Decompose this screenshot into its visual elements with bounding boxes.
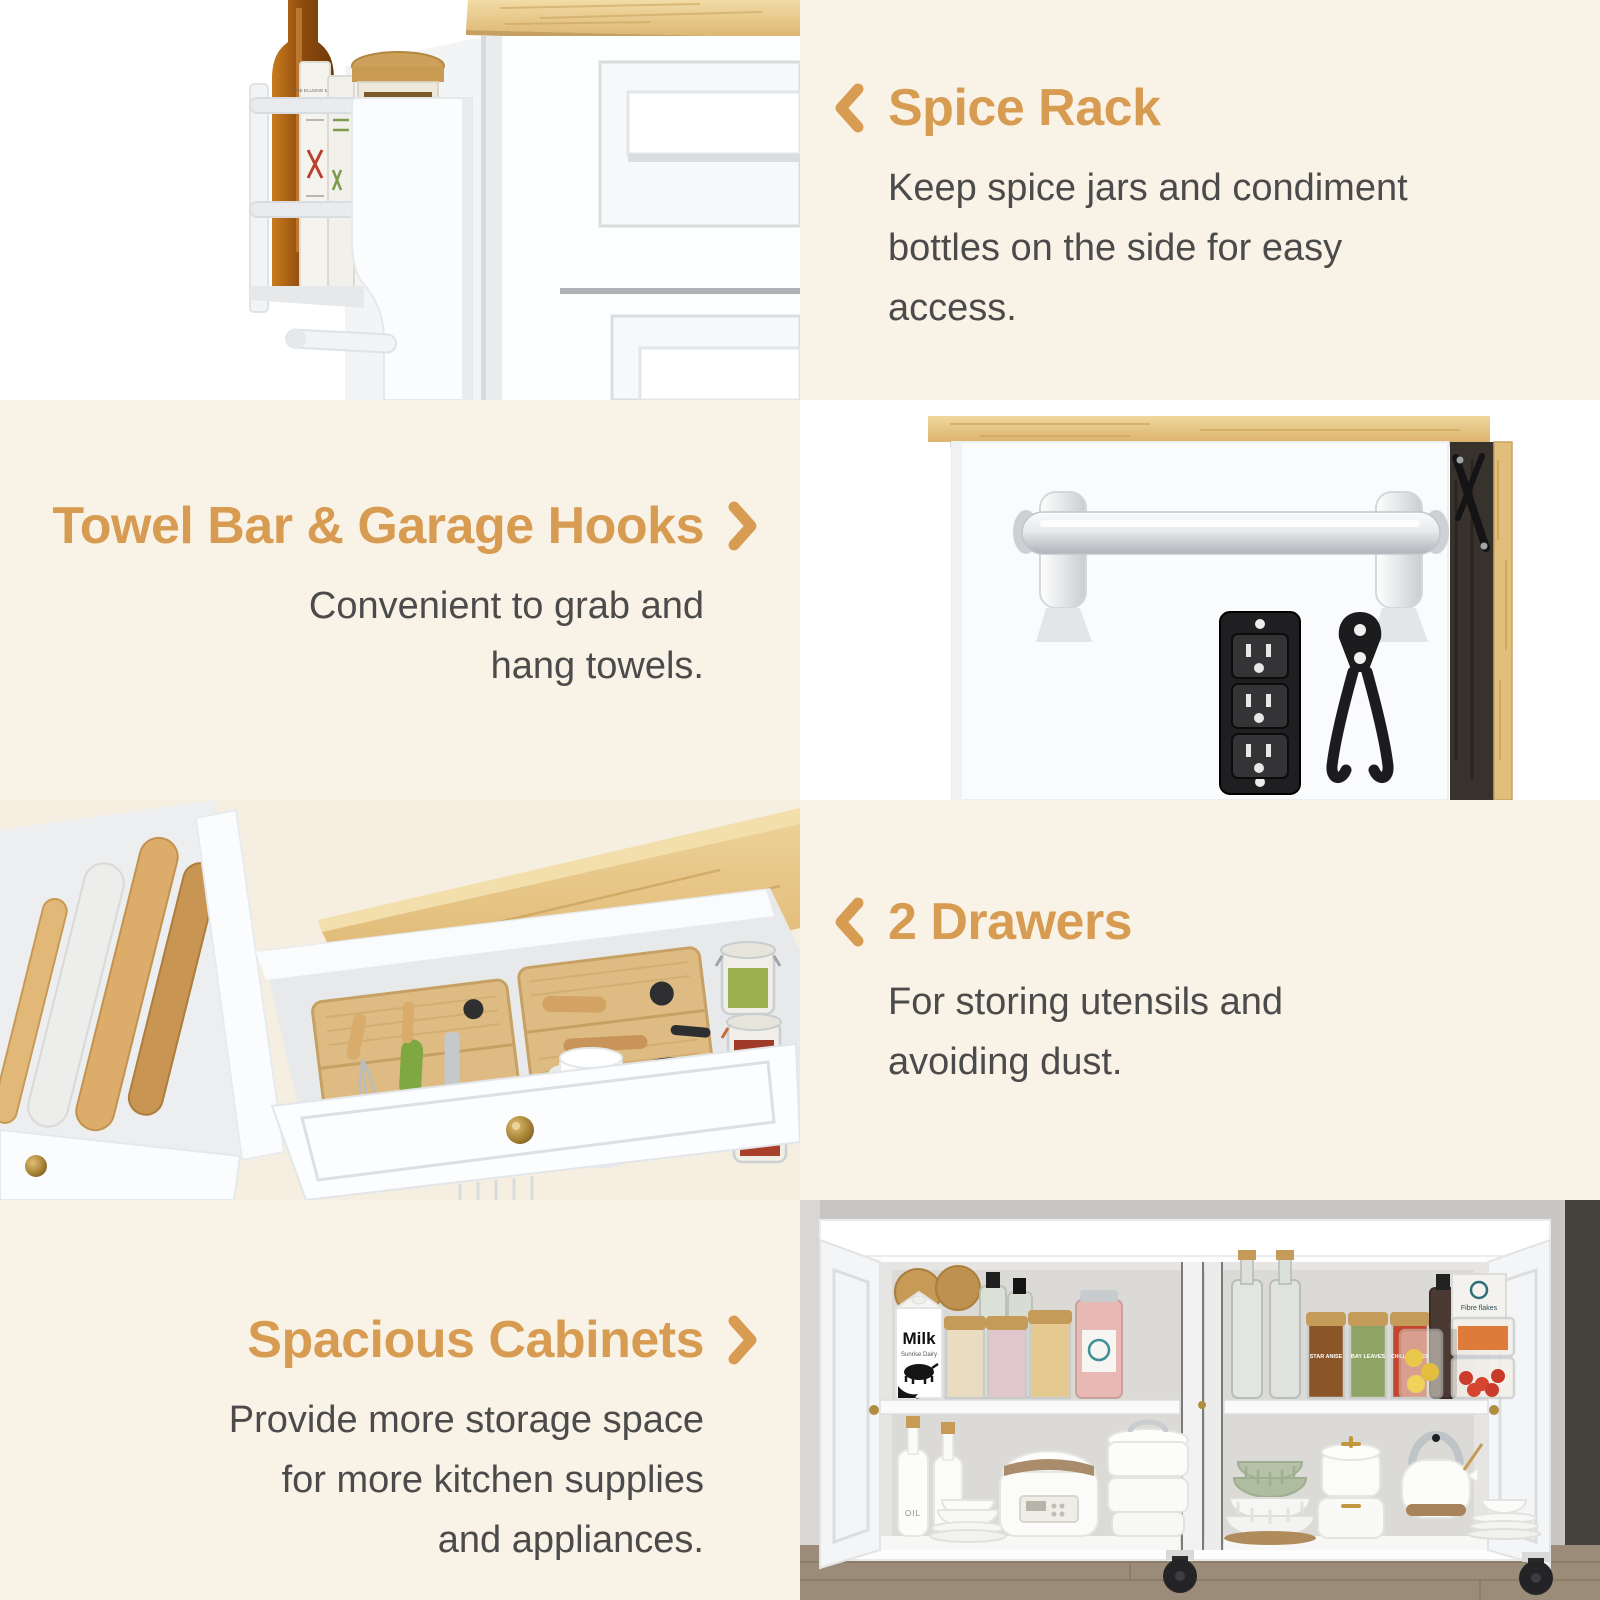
chevron-right-icon xyxy=(726,500,760,552)
cabinets-text: Spacious Cabinets Provide more storage s… xyxy=(229,1310,760,1570)
outlet-socket xyxy=(1232,684,1288,728)
brass-knob xyxy=(506,1116,534,1144)
brass-knob xyxy=(1489,1405,1499,1415)
towel-bar-rod xyxy=(1022,512,1440,554)
shelf-left xyxy=(878,1400,1180,1414)
stacked-steamer-pot xyxy=(1108,1422,1188,1536)
spice-rack-left-wall xyxy=(250,84,268,312)
feature-infographic: THE ELUSIVE MALT xyxy=(0,0,1600,1600)
section-description: Provide more storage space for more kitc… xyxy=(229,1390,760,1570)
cabinet-bottom-left xyxy=(878,1536,1180,1550)
section-title: Spice Rack xyxy=(888,78,1161,138)
section-description: Keep spice jars and condiment bottles on… xyxy=(888,158,1408,338)
milk-label: Milk xyxy=(902,1329,936,1348)
svg-text:Fibre flakes: Fibre flakes xyxy=(1461,1305,1498,1312)
cabinet-front xyxy=(486,36,800,400)
outlet-socket xyxy=(1232,634,1288,678)
white-canisters xyxy=(1318,1438,1384,1538)
drawers-scene xyxy=(0,800,800,1200)
lemon-jar xyxy=(1400,1330,1442,1398)
towel-bar-scene xyxy=(800,400,1600,800)
rice-cooker xyxy=(1000,1451,1098,1536)
drawers-heading: 2 Drawers xyxy=(832,892,1283,952)
spice-rack-scene: THE ELUSIVE MALT xyxy=(0,0,800,400)
towel-bar-text: Towel Bar & Garage Hooks Convenient to g… xyxy=(52,496,760,696)
wooden-trivet xyxy=(1224,1531,1316,1545)
power-outlet-strip xyxy=(1220,612,1300,794)
chevron-right-icon xyxy=(726,1314,760,1366)
brass-knob xyxy=(869,1405,879,1415)
spice-jar-star-anise: STAR ANISE xyxy=(1306,1312,1346,1398)
wood-lid-jar xyxy=(936,1266,980,1310)
caster-wheel xyxy=(1163,1550,1197,1593)
section-title: 2 Drawers xyxy=(888,892,1132,952)
room-shadow xyxy=(1565,1200,1600,1600)
cow-silhouette xyxy=(904,1364,934,1380)
caster-wheel xyxy=(1519,1552,1553,1595)
drawers-text: 2 Drawers For storing utensils and avoid… xyxy=(832,892,1283,1092)
milk-carton: Milk Sunrise Dairy xyxy=(896,1292,942,1399)
cabinets-scene: Milk Sunrise Dairy xyxy=(800,1200,1600,1600)
section-title: Towel Bar & Garage Hooks xyxy=(52,496,704,556)
svg-text:BAY LEAVES: BAY LEAVES xyxy=(1351,1354,1385,1360)
cabinets-photo: Milk Sunrise Dairy xyxy=(800,1200,1600,1600)
brass-knob xyxy=(25,1155,47,1177)
svg-text:OIL: OIL xyxy=(905,1509,921,1518)
section-description: For storing utensils and avoiding dust. xyxy=(888,972,1283,1092)
drawers-photo xyxy=(0,800,800,1200)
goji-berry-jar xyxy=(1076,1290,1122,1398)
drop-leaf-wood-edge xyxy=(1494,442,1512,800)
section-description: Convenient to grab and hang towels. xyxy=(52,576,760,696)
striped-white-bowls xyxy=(1224,1498,1316,1545)
outlet-socket xyxy=(1232,734,1288,778)
grain-jars xyxy=(944,1310,1072,1398)
cabinets-heading: Spacious Cabinets xyxy=(229,1310,760,1370)
green-bowls-stack xyxy=(1234,1462,1306,1497)
cabinet-top xyxy=(820,1220,1550,1256)
cabinet-door-left-open xyxy=(820,1240,880,1568)
svg-text:STAR ANISE: STAR ANISE xyxy=(1310,1354,1343,1360)
chevron-left-icon xyxy=(832,896,866,948)
towel-bar-photo xyxy=(800,400,1600,800)
spice-rack-text: Spice Rack Keep spice jars and condiment… xyxy=(832,78,1408,338)
carrots xyxy=(1458,1326,1508,1350)
section-title: Spacious Cabinets xyxy=(247,1310,704,1370)
milk-sublabel: Sunrise Dairy xyxy=(901,1352,937,1358)
folded-drop-leaf xyxy=(1450,442,1512,800)
chevron-left-icon xyxy=(832,82,866,134)
shelf-right xyxy=(1224,1400,1488,1414)
towel-bar-heading: Towel Bar & Garage Hooks xyxy=(52,496,760,556)
spice-jar-bay-leaves: BAY LEAVES xyxy=(1348,1312,1388,1398)
spice-rack-photo: THE ELUSIVE MALT xyxy=(0,0,800,400)
stacked-produce-bins xyxy=(1452,1318,1514,1398)
spice-rack-heading: Spice Rack xyxy=(832,78,1408,138)
